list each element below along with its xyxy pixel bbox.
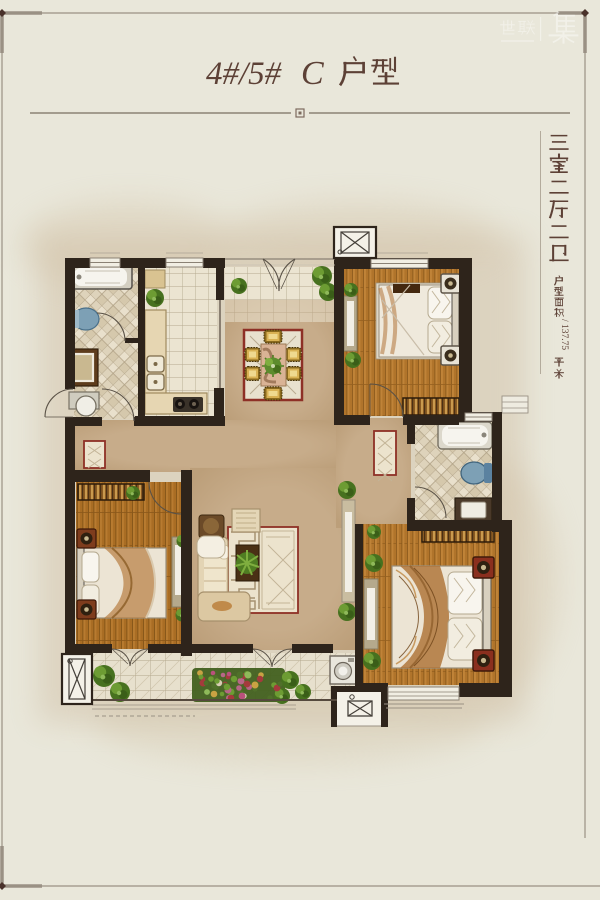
svg-text:4#/5#: 4#/5#	[206, 56, 283, 92]
svg-text:C: C	[301, 55, 324, 92]
svg-text:/ 137.75: / 137.75	[559, 319, 569, 350]
